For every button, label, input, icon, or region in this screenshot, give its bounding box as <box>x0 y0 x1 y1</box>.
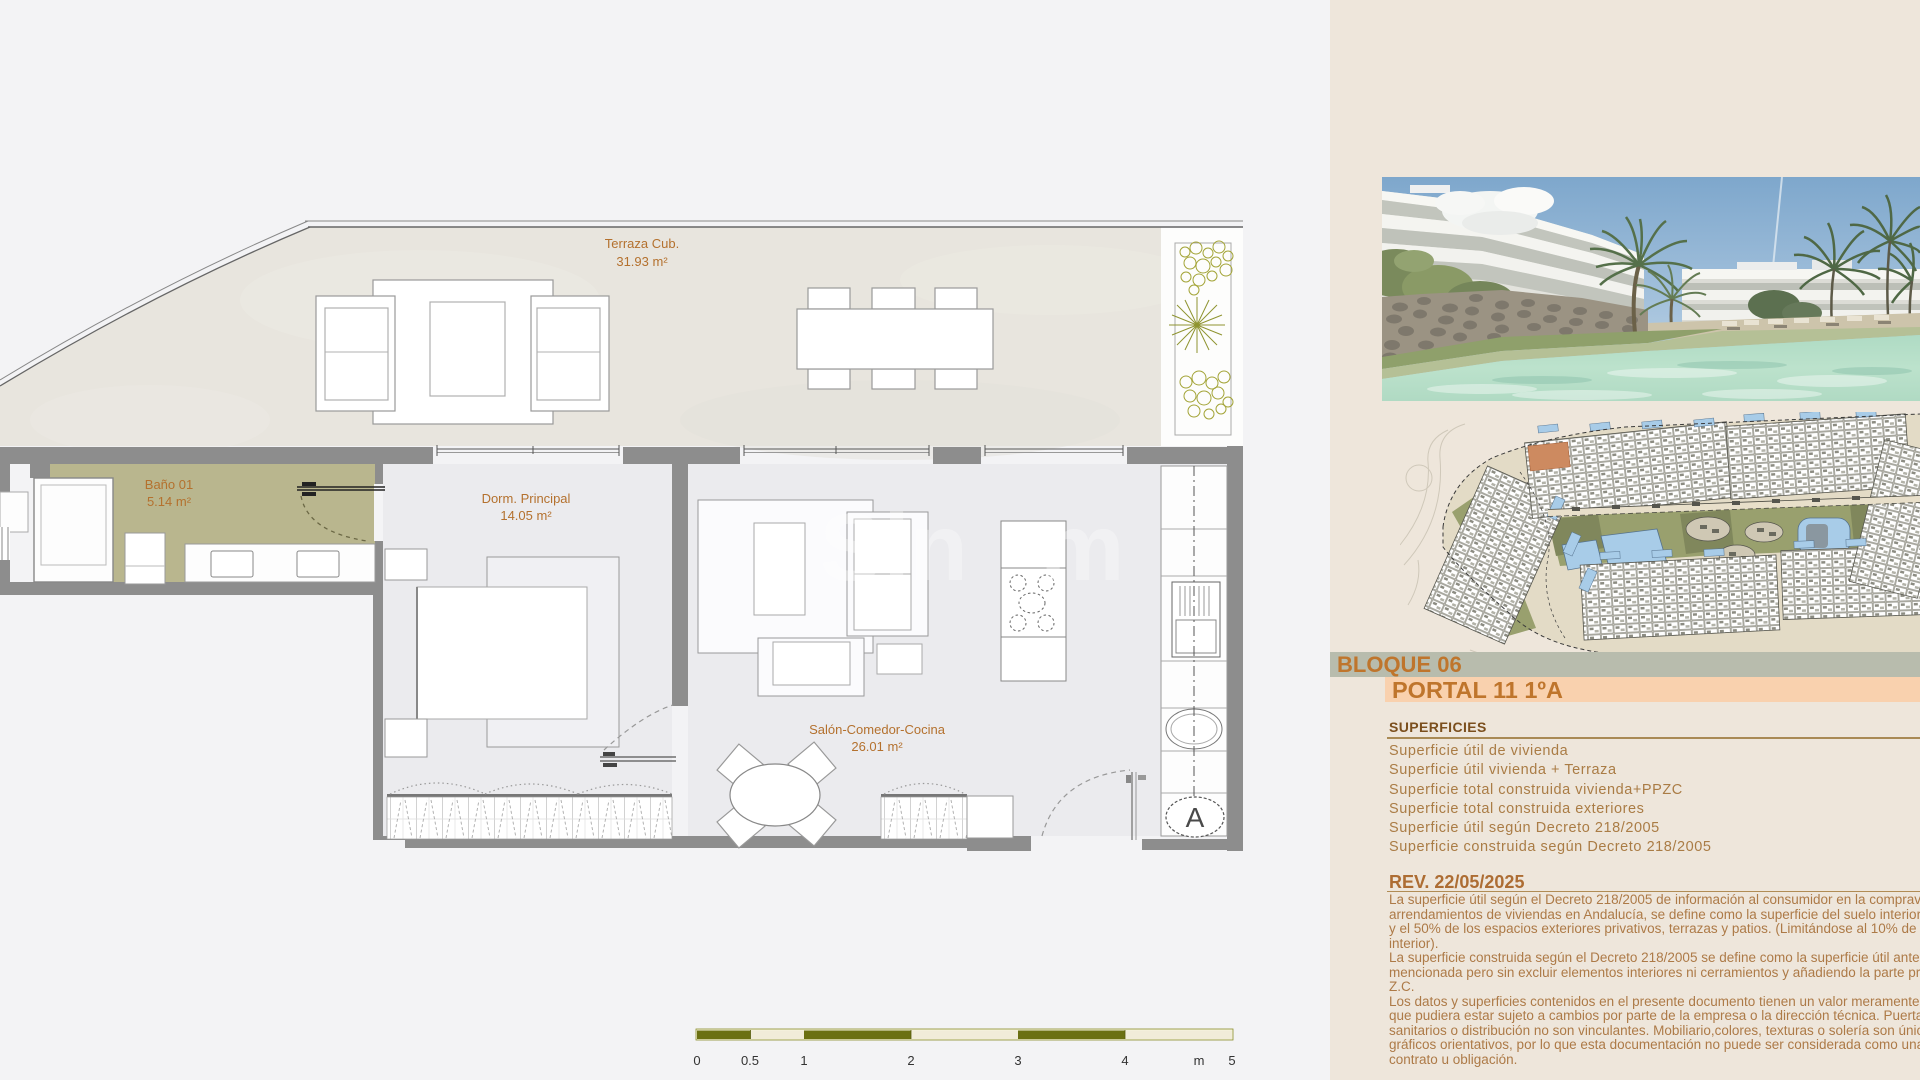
svg-text:Salón-Comedor-Cocina: Salón-Comedor-Cocina <box>809 722 946 737</box>
svg-text:0: 0 <box>693 1053 700 1068</box>
svg-text:3: 3 <box>1014 1053 1021 1068</box>
svg-text:5.14 m²: 5.14 m² <box>147 494 192 509</box>
svg-text:Baño 01: Baño 01 <box>145 477 193 492</box>
svg-text:1: 1 <box>800 1053 807 1068</box>
svg-text:14.05 m²: 14.05 m² <box>500 508 552 523</box>
svg-text:5: 5 <box>1228 1053 1235 1068</box>
svg-text:A: A <box>1186 802 1205 833</box>
svg-text:m: m <box>1194 1053 1205 1068</box>
svg-text:31.93 m²: 31.93 m² <box>616 254 668 269</box>
svg-text:26.01 m²: 26.01 m² <box>851 739 903 754</box>
svg-text:m: m <box>1040 495 1124 601</box>
svg-text:Terraza Cub.: Terraza Cub. <box>605 236 679 251</box>
svg-text:2: 2 <box>907 1053 914 1068</box>
svg-text:4: 4 <box>1121 1053 1128 1068</box>
svg-text:Sin: Sin <box>820 495 968 601</box>
svg-text:0.5: 0.5 <box>741 1053 759 1068</box>
svg-text:Dorm. Principal: Dorm. Principal <box>482 491 571 506</box>
